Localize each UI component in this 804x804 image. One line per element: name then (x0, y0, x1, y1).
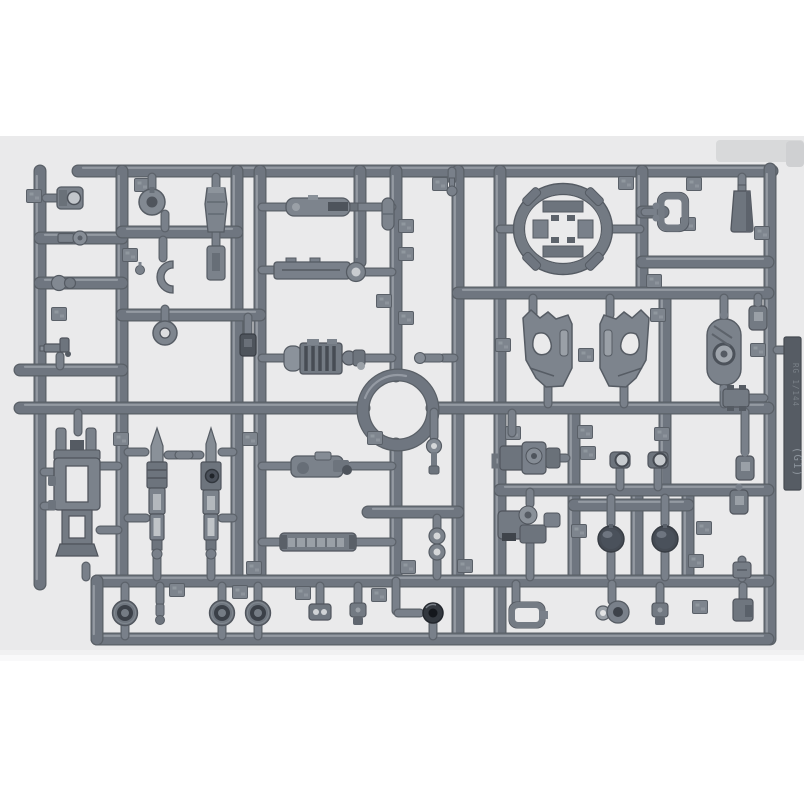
sprue-gate (651, 309, 666, 322)
sprue-gate (755, 227, 770, 240)
part-darkbit (240, 334, 256, 356)
sprue-gate (372, 589, 387, 602)
sprue-gate (399, 312, 414, 325)
part-flatplate (207, 246, 225, 280)
sprue-gate (655, 428, 670, 441)
sprue-gate (399, 220, 414, 233)
sprue-gate (693, 601, 708, 614)
sprue-gate (572, 525, 587, 538)
part-eyepart (610, 452, 630, 468)
part-minilens (423, 603, 443, 623)
sprue-gate (619, 177, 634, 190)
part-ovalflat (707, 311, 741, 393)
part-lens (113, 601, 138, 626)
sprue-gate (578, 426, 593, 439)
part-torus (153, 321, 177, 345)
model-kit-sprue-photo: RG 1/144 (G1) (0, 0, 804, 804)
sprue-gate (697, 522, 712, 535)
part-lens (210, 601, 235, 626)
sprue-gate (170, 584, 185, 597)
sprue-gate (458, 560, 473, 573)
sprue-gate (123, 249, 138, 262)
sprue-gate (114, 433, 129, 446)
part-tinybit (156, 604, 165, 625)
part-shoe (205, 187, 227, 232)
background-object (786, 141, 804, 167)
part-ballpair (52, 276, 76, 291)
part-trapezoid (731, 185, 753, 232)
sprue-gate (27, 190, 42, 203)
part-socket (57, 187, 83, 209)
part-riflelink (175, 451, 193, 459)
part-balllink (58, 231, 87, 245)
sprue-gate (401, 561, 416, 574)
part-hbracket (723, 385, 749, 411)
sprue-gate (399, 248, 414, 261)
part-stripebar (280, 533, 356, 551)
sprue-gate (647, 275, 662, 288)
sprue-gate (579, 349, 594, 362)
sprue-gate (247, 562, 262, 575)
photo-bottom-fade (0, 655, 804, 661)
part-smallbox (733, 562, 751, 578)
sprue-gate (368, 432, 383, 445)
part-tbar (415, 353, 444, 364)
runner-id-tag: RG 1/144 (G1) (784, 337, 804, 490)
runner-tag-kit-text: RG 1/144 (791, 363, 800, 407)
part-lens (246, 601, 271, 626)
sprue-gate (751, 344, 766, 357)
part-eyes2 (309, 604, 331, 620)
part-eyepart (648, 452, 668, 468)
sprue-gate (377, 295, 392, 308)
sprue-gate (233, 586, 248, 599)
sprue-gate (243, 433, 258, 446)
sprue-gate (687, 178, 702, 191)
part-cornerbit (733, 599, 753, 621)
sprue-gate (52, 308, 67, 321)
runner-tag-letter: (G1) (791, 447, 804, 478)
part-capsule (382, 198, 394, 230)
sprue-gate (689, 555, 704, 568)
sprue-gate (496, 339, 511, 352)
sprue-gate (433, 178, 448, 191)
sprue-gate (296, 587, 311, 600)
sprue-gate (581, 447, 596, 460)
